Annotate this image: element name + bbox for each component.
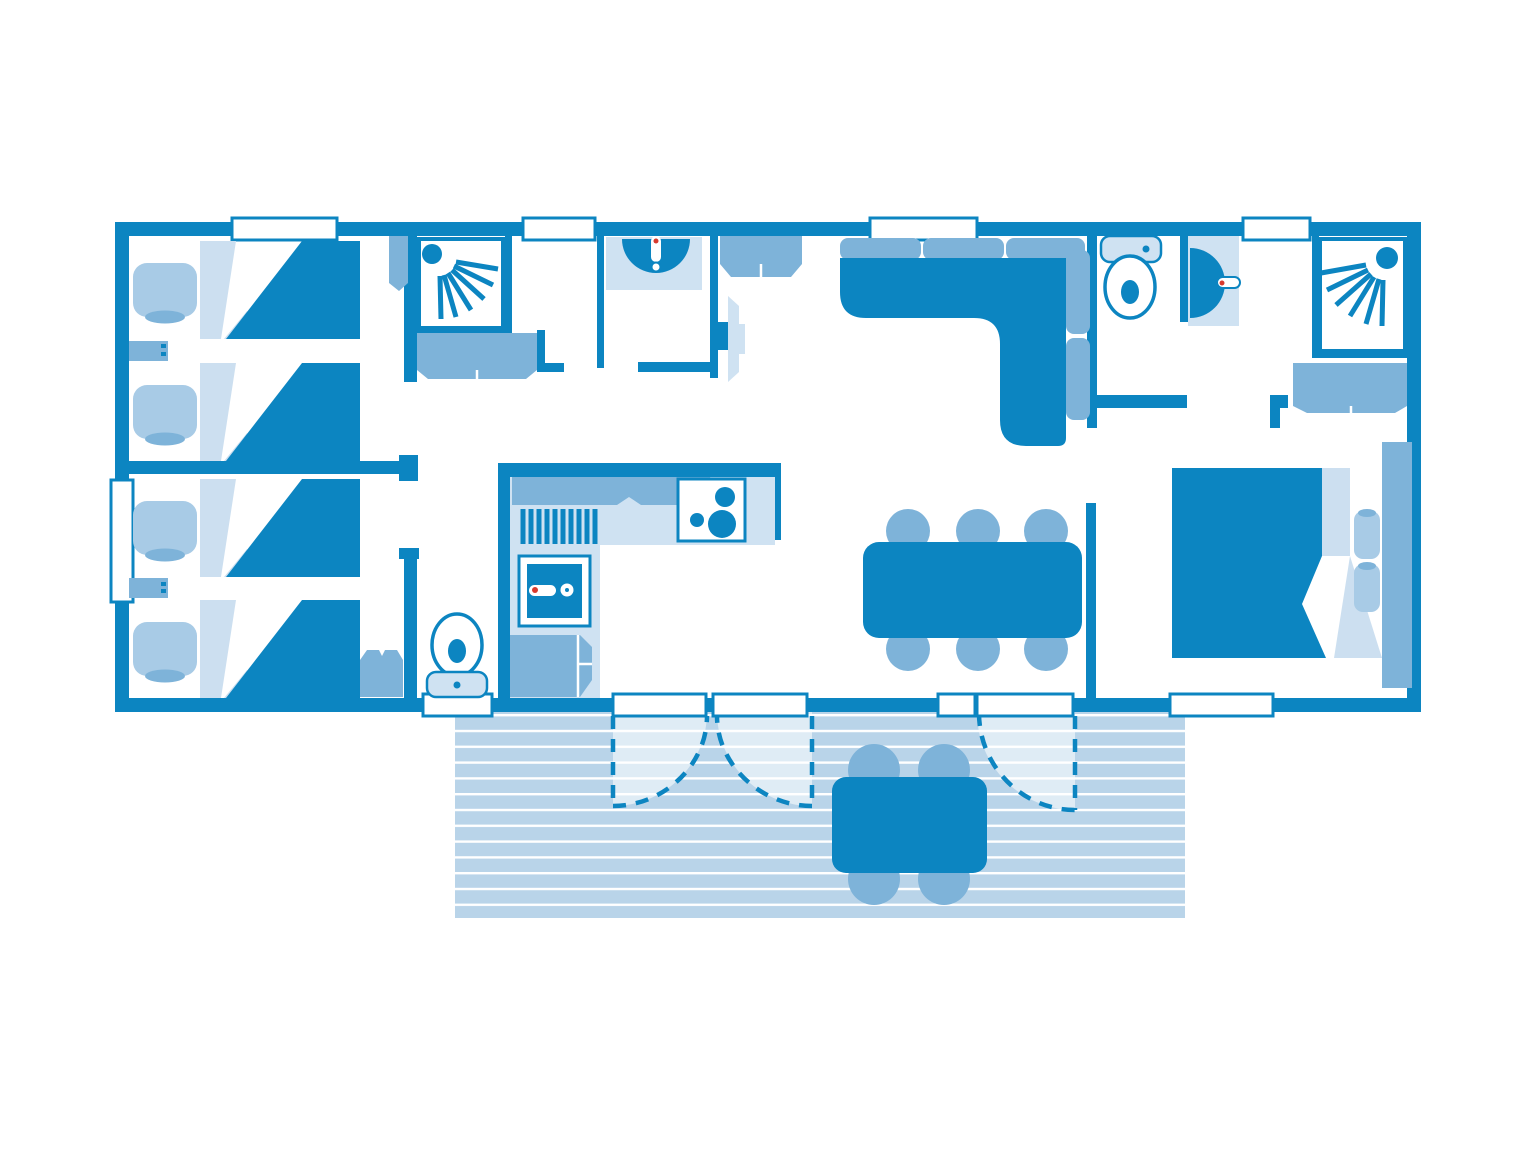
sofa-back-cushion xyxy=(923,238,1004,260)
wall-shower2-side xyxy=(1312,236,1319,353)
window-top-living xyxy=(870,218,977,240)
room-living-dining xyxy=(840,238,1090,671)
wall-exterior-left xyxy=(115,222,129,712)
wardrobe xyxy=(389,236,408,291)
wall-shower1-side xyxy=(505,236,512,330)
room-wc-2 xyxy=(1101,236,1161,318)
nightstand xyxy=(129,341,168,361)
single-bed xyxy=(133,241,360,339)
tv xyxy=(718,296,745,382)
single-bed xyxy=(133,479,360,577)
pillow-stitch xyxy=(1358,562,1376,570)
wall-bath1-right xyxy=(597,236,604,368)
shower-cabin xyxy=(419,239,503,328)
flush-button xyxy=(1143,246,1150,253)
shower-head-icon xyxy=(1376,247,1398,269)
hob xyxy=(678,479,745,541)
room-shower-1 xyxy=(417,239,537,379)
duvet xyxy=(1172,468,1326,658)
pillow xyxy=(1354,511,1380,559)
floor-plan-canvas xyxy=(0,0,1536,1152)
pillow xyxy=(133,501,197,555)
wall-tv xyxy=(710,236,718,378)
tv-and-sideboard xyxy=(718,236,802,382)
pillow xyxy=(133,263,197,317)
room-master-bedroom xyxy=(1172,442,1412,688)
toilet xyxy=(427,614,487,697)
sofa-back-cushion xyxy=(1066,338,1090,420)
window-bottom-master xyxy=(1170,694,1273,716)
window-top-bedroom1 xyxy=(232,218,337,240)
french-door-left-leaf[interactable] xyxy=(613,694,706,716)
wall-washroom-bottom xyxy=(638,362,710,372)
vanity-unit xyxy=(417,333,537,379)
sofa-back-cushion xyxy=(1066,250,1090,334)
pillow xyxy=(133,622,197,676)
room-hall-wc xyxy=(427,614,487,697)
dining-set xyxy=(863,509,1082,671)
sofa-seat xyxy=(840,258,1066,446)
tv-mount xyxy=(718,322,728,350)
fridge xyxy=(510,635,592,697)
washbasin xyxy=(1188,236,1240,326)
drain xyxy=(652,263,661,272)
kitchen-sink xyxy=(519,556,590,626)
wall-master-top-right xyxy=(1270,395,1288,408)
corner-sofa xyxy=(840,238,1090,446)
burner xyxy=(690,513,704,527)
single-bed xyxy=(133,600,360,698)
drain xyxy=(1209,280,1216,287)
burner xyxy=(715,487,735,507)
toilet xyxy=(1101,236,1161,318)
pillow-stitch xyxy=(145,433,185,446)
burner xyxy=(708,510,736,538)
wall-cap xyxy=(399,548,419,559)
pillow-stitch xyxy=(1358,509,1376,517)
wall-kitchen-top xyxy=(498,463,781,477)
wall-kitchen-left xyxy=(498,477,510,698)
room-kitchen xyxy=(510,477,775,698)
shower-head-icon xyxy=(422,244,442,264)
single-bed xyxy=(133,363,360,461)
pillow xyxy=(133,385,197,439)
pillow-stitch xyxy=(145,549,185,562)
dining-table xyxy=(863,542,1082,638)
single-door-leaf[interactable] xyxy=(977,694,1073,716)
wall-master-top-left xyxy=(1097,395,1187,408)
tv-screen xyxy=(728,296,739,382)
room-shower-2 xyxy=(1188,236,1407,413)
window-bottom-living xyxy=(938,694,975,716)
terrace-deck xyxy=(455,712,1185,918)
room-washbasin xyxy=(606,236,702,290)
headboard xyxy=(1382,442,1412,688)
wardrobe xyxy=(360,650,403,697)
double-bed xyxy=(1172,468,1382,658)
sideboard xyxy=(720,236,802,277)
pillow xyxy=(1354,564,1380,612)
wall-cap xyxy=(399,455,418,481)
wall-master-left xyxy=(1086,503,1096,698)
sofa-back-cushion xyxy=(840,238,921,260)
washbasin xyxy=(606,236,702,290)
pillow-stitch xyxy=(145,311,185,324)
nightstand xyxy=(129,578,168,598)
wall-bedroom-divider xyxy=(129,461,407,474)
room-bedroom-twin-2 xyxy=(129,479,403,698)
wall-bath1-stub xyxy=(537,363,564,372)
flush-button xyxy=(454,682,461,689)
window-top-bathroom2 xyxy=(1243,218,1310,240)
closet xyxy=(1293,363,1407,413)
room-bedroom-twin-1 xyxy=(129,236,408,461)
shower-cabin xyxy=(1320,239,1405,351)
wall-stub xyxy=(1270,408,1280,428)
wall-wc2-basin-divider xyxy=(1180,236,1188,322)
wall-bedroom2-right xyxy=(404,550,417,698)
outdoor-table xyxy=(832,777,987,873)
floor-plan-page xyxy=(0,0,1536,1152)
french-door-right-leaf[interactable] xyxy=(713,694,807,716)
window-top-bathroom1 xyxy=(523,218,595,240)
pillow-stitch xyxy=(145,670,185,683)
